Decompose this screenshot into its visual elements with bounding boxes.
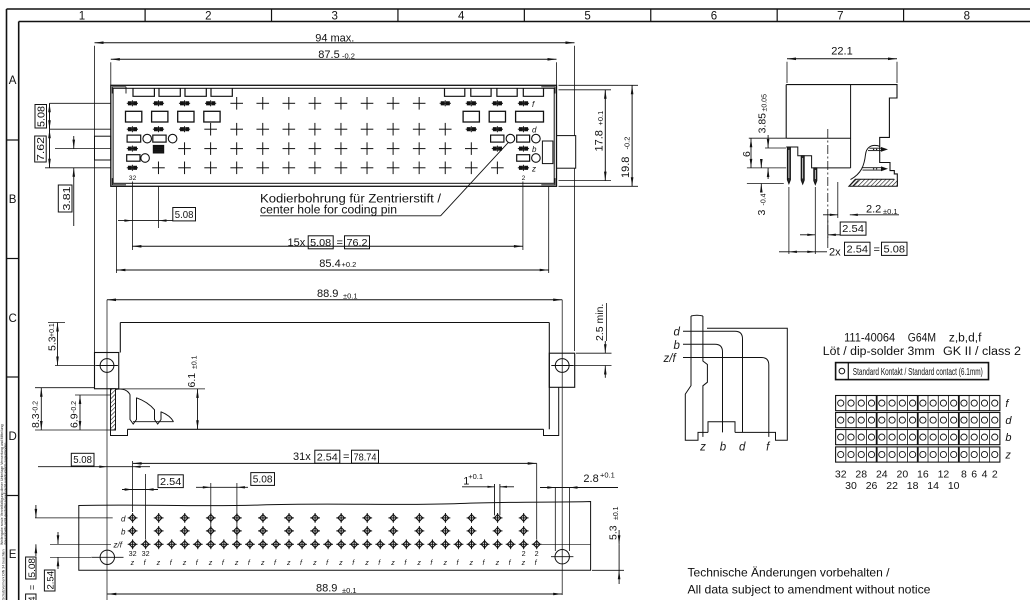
- svg-text:C: C: [8, 313, 16, 325]
- svg-text:4: 4: [982, 468, 988, 480]
- svg-text:20: 20: [897, 468, 909, 480]
- svg-text:z: z: [182, 560, 187, 567]
- svg-text:78.74: 78.74: [354, 451, 377, 463]
- svg-text:z: z: [416, 560, 421, 567]
- svg-text:Löt / dip-solder 3mm: Löt / dip-solder 3mm: [823, 346, 935, 358]
- svg-text:ihres Inhalts nicht gestattet: ihres Inhalts nicht gestattet soweit nic…: [3, 443, 7, 545]
- svg-text:6: 6: [741, 151, 753, 157]
- svg-text:=: =: [27, 585, 37, 590]
- svg-text:b: b: [720, 442, 727, 454]
- svg-text:B: B: [9, 194, 17, 206]
- svg-text:5.3: 5.3: [608, 525, 620, 540]
- svg-text:18: 18: [907, 480, 919, 492]
- svg-text:88.9: 88.9: [316, 583, 337, 595]
- svg-text:b: b: [1005, 432, 1011, 444]
- svg-text:d: d: [739, 442, 746, 454]
- svg-text:5.08: 5.08: [884, 243, 906, 255]
- svg-text:19.8: 19.8: [620, 157, 632, 178]
- svg-text:z: z: [521, 560, 526, 567]
- svg-text:4: 4: [458, 10, 465, 22]
- svg-text:±0.1: ±0.1: [342, 586, 357, 595]
- svg-text:88.9: 88.9: [317, 288, 338, 300]
- svg-text:-0.2: -0.2: [33, 401, 40, 413]
- svg-text:+0.1: +0.1: [49, 323, 56, 337]
- svg-text:z: z: [130, 560, 135, 567]
- svg-text:5.08: 5.08: [175, 209, 194, 221]
- svg-text:3.81: 3.81: [61, 186, 73, 210]
- svg-text:32: 32: [142, 549, 150, 558]
- svg-text:2.54: 2.54: [160, 476, 181, 488]
- svg-text:31x: 31x: [293, 451, 311, 463]
- svg-text:8: 8: [964, 10, 970, 22]
- svg-text:z: z: [390, 560, 395, 567]
- svg-text:2.54: 2.54: [847, 243, 869, 255]
- svg-text:7.62: 7.62: [35, 137, 47, 161]
- svg-text:16: 16: [917, 468, 929, 480]
- svg-text:z: z: [286, 560, 291, 567]
- svg-text:2: 2: [992, 468, 998, 480]
- svg-text:z: z: [699, 442, 706, 454]
- svg-text:2: 2: [205, 10, 211, 22]
- svg-text:32: 32: [129, 549, 137, 558]
- svg-text:±0.05: ±0.05: [761, 94, 768, 112]
- svg-text:12: 12: [938, 468, 950, 480]
- svg-text:z: z: [469, 560, 474, 567]
- svg-text:4: 4: [27, 596, 37, 600]
- svg-text:b: b: [674, 340, 681, 352]
- svg-text:-0.4: -0.4: [760, 193, 767, 205]
- svg-text:=: =: [337, 237, 343, 249]
- svg-text:-0.2: -0.2: [342, 51, 355, 60]
- svg-text:Standard Kontakt / Standard co: Standard Kontakt / Standard contact (6.1…: [853, 366, 983, 378]
- svg-text:14: 14: [927, 480, 939, 492]
- svg-text:=: =: [874, 244, 880, 256]
- svg-text:GK II / class 2: GK II / class 2: [943, 346, 1021, 358]
- svg-text:Schutzvermerk DIN 34 beachten: Schutzvermerk DIN 34 beachten: [2, 549, 6, 600]
- svg-text:6: 6: [971, 468, 977, 480]
- svg-text:24: 24: [876, 468, 888, 480]
- svg-text:2.54: 2.54: [317, 451, 338, 463]
- svg-text:8: 8: [961, 468, 967, 480]
- svg-text:z: z: [312, 560, 317, 567]
- svg-text:3: 3: [756, 210, 768, 216]
- svg-text:1: 1: [79, 10, 85, 22]
- svg-text:b: b: [532, 145, 537, 154]
- svg-text:center hole for coding pin: center hole for coding pin: [260, 205, 397, 217]
- svg-text:±0.1: ±0.1: [613, 506, 620, 520]
- svg-text:A: A: [9, 75, 17, 87]
- svg-text:5.08: 5.08: [310, 237, 331, 249]
- svg-text:6: 6: [711, 10, 717, 22]
- svg-text:E: E: [9, 549, 17, 561]
- svg-text:22: 22: [886, 480, 898, 492]
- svg-text:2x: 2x: [829, 246, 841, 258]
- svg-text:2.54: 2.54: [842, 223, 864, 235]
- svg-text:d: d: [674, 327, 681, 339]
- svg-text:z,b,d,f: z,b,d,f: [949, 333, 982, 345]
- svg-text:87.5: 87.5: [318, 49, 339, 61]
- svg-text:8.3: 8.3: [30, 413, 42, 428]
- svg-text:30: 30: [845, 480, 857, 492]
- svg-text:5.3: 5.3: [47, 336, 59, 351]
- svg-text:z: z: [364, 560, 369, 567]
- svg-text:2.2: 2.2: [866, 204, 881, 216]
- svg-text:+0.2: +0.2: [342, 260, 357, 269]
- svg-text:+0.1: +0.1: [600, 471, 615, 480]
- svg-text:z/f: z/f: [113, 541, 123, 550]
- svg-text:7: 7: [837, 10, 843, 22]
- svg-text:z: z: [338, 560, 343, 567]
- svg-text:d: d: [121, 514, 126, 523]
- svg-text:d: d: [1005, 415, 1012, 427]
- svg-text:z: z: [1004, 449, 1011, 461]
- svg-text:-0.2: -0.2: [71, 401, 78, 413]
- svg-text:5.08: 5.08: [73, 454, 92, 466]
- svg-text:94 max.: 94 max.: [315, 32, 354, 44]
- svg-text:5.08: 5.08: [27, 558, 37, 578]
- svg-text:111-40064: 111-40064: [844, 333, 896, 345]
- svg-text:G64M: G64M: [908, 333, 936, 345]
- svg-text:z: z: [208, 560, 213, 567]
- svg-text:3.85: 3.85: [757, 113, 769, 134]
- svg-text:z: z: [531, 164, 536, 173]
- svg-text:+0.1: +0.1: [468, 472, 483, 481]
- svg-text:5.08: 5.08: [253, 474, 273, 486]
- svg-text:76.2: 76.2: [347, 237, 368, 249]
- svg-text:2.8: 2.8: [583, 473, 598, 485]
- svg-text:32: 32: [835, 468, 847, 480]
- svg-text:5: 5: [584, 10, 590, 22]
- svg-text:D: D: [8, 431, 16, 443]
- svg-text:+0.1: +0.1: [596, 111, 605, 126]
- svg-text:±0.1: ±0.1: [883, 207, 898, 216]
- svg-text:32: 32: [129, 175, 137, 182]
- svg-text:z: z: [234, 560, 239, 567]
- svg-text:z: z: [156, 560, 161, 567]
- svg-text:28: 28: [855, 468, 867, 480]
- svg-text:z: z: [442, 560, 447, 567]
- svg-text:2: 2: [535, 549, 539, 558]
- svg-text:2.5 min.: 2.5 min.: [594, 304, 606, 341]
- svg-text:±0.1: ±0.1: [343, 292, 358, 301]
- svg-text:2.54: 2.54: [46, 571, 56, 590]
- svg-text:5.08: 5.08: [35, 106, 47, 127]
- svg-text:z: z: [260, 560, 265, 567]
- svg-text:z/f: z/f: [663, 353, 678, 365]
- svg-text:2: 2: [522, 549, 526, 558]
- svg-text:6.1: 6.1: [186, 373, 198, 388]
- svg-text:26: 26: [866, 480, 878, 492]
- svg-text:=: =: [343, 451, 349, 463]
- svg-text:d: d: [532, 126, 537, 135]
- svg-text:15x: 15x: [288, 237, 306, 249]
- svg-text:17.8: 17.8: [594, 130, 606, 151]
- svg-text:2: 2: [522, 175, 526, 182]
- svg-text:10: 10: [948, 480, 960, 492]
- svg-text:-0.2: -0.2: [623, 137, 632, 150]
- svg-text:85.4: 85.4: [319, 258, 340, 270]
- svg-text:±0.1: ±0.1: [192, 355, 199, 369]
- svg-text:6.9: 6.9: [69, 413, 81, 428]
- svg-text:z: z: [495, 560, 500, 567]
- svg-text:22.1: 22.1: [831, 46, 852, 58]
- svg-text:All data subject to amendment: All data subject to amendment without no…: [688, 583, 931, 597]
- svg-text:3: 3: [332, 10, 338, 22]
- svg-text:b: b: [121, 527, 126, 536]
- svg-text:Technische Änderungen vorbehal: Technische Änderungen vorbehalten /: [688, 566, 891, 580]
